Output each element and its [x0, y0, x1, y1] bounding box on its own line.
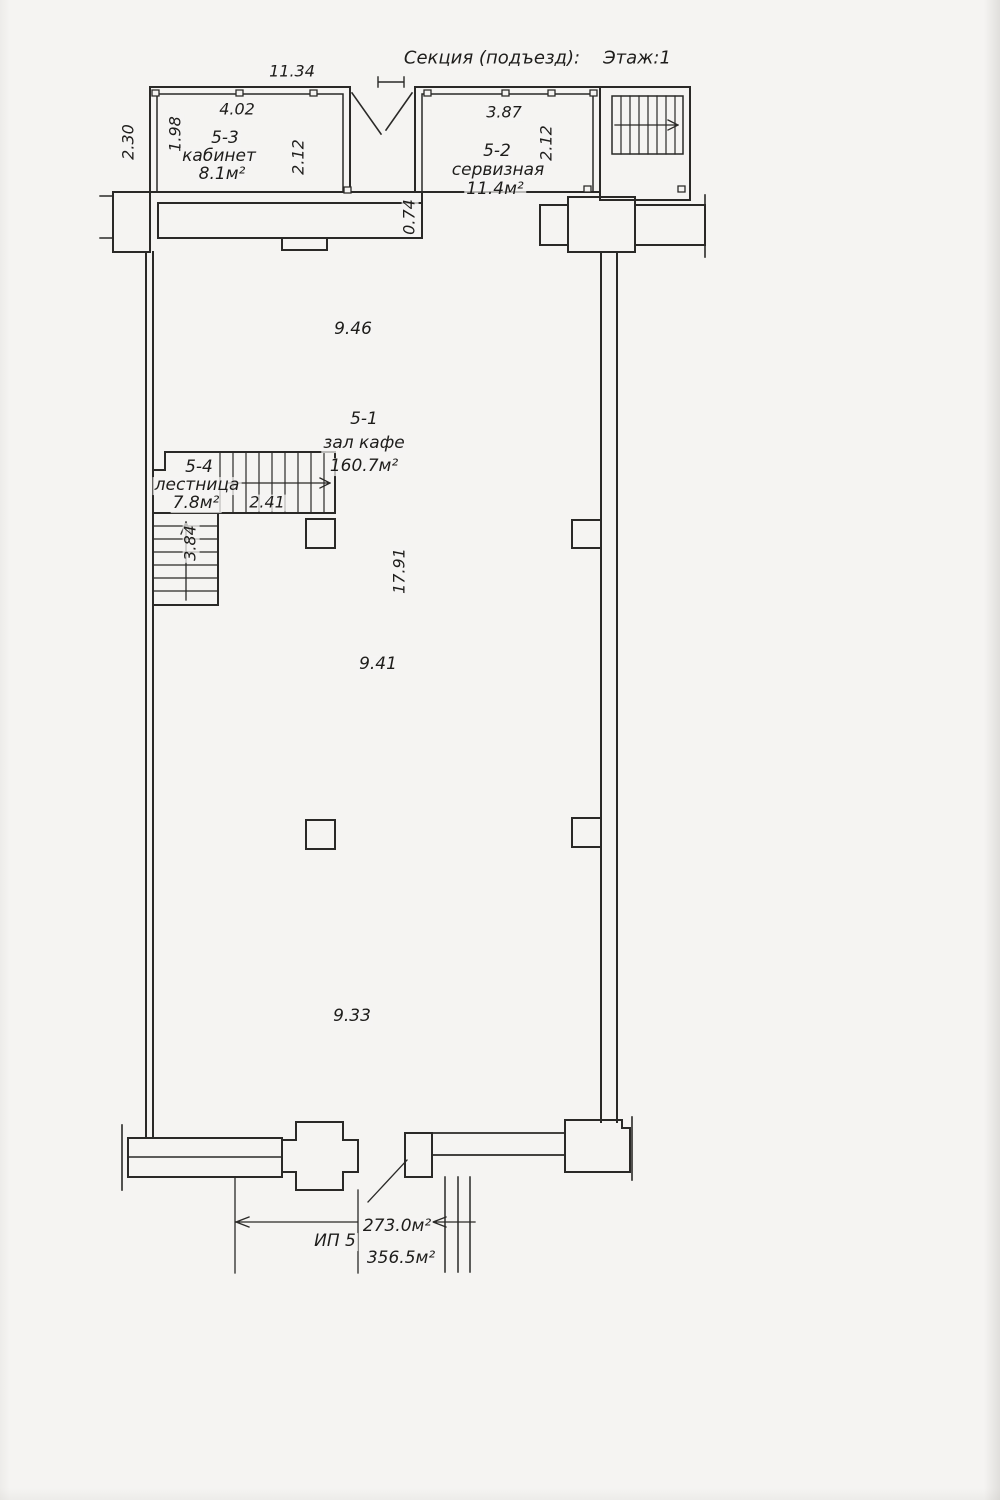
dim-top-total: 11.34: [267, 64, 317, 81]
entrance-door-icon: [352, 77, 412, 134]
dim-cab-width: 4.02: [217, 102, 257, 119]
dim-vestibule: 2.12: [291, 137, 308, 177]
floor-title: Этаж:1: [601, 50, 673, 69]
dim-serv-width: 3.87: [484, 105, 524, 122]
owner-label: ИП 5: [312, 1233, 358, 1251]
dim-stair-flight: 3.84: [183, 523, 200, 563]
dim-serv-depth: 2.12: [539, 123, 556, 163]
hall-left-wall: [146, 252, 153, 1138]
dim-hall-bottom: 9.33: [331, 1008, 373, 1026]
room-5-2-id: 5-2: [481, 143, 513, 161]
dim-left-outer: 2.30: [121, 122, 138, 162]
staircase-top-icon: [600, 87, 690, 200]
mid-wall-left: [100, 187, 422, 252]
agency-logo: Realt Сильван-Инвест Агентство Недвижимо…: [0, 1280, 1000, 1500]
floor-plan-page: Секция (подъезд): Этаж:1 11.34 4.02 1.98…: [0, 0, 1000, 1500]
room-5-2-name: сервизная: [450, 162, 546, 180]
room-5-1-area: 160.7м²: [328, 458, 400, 476]
hall-columns: [306, 519, 601, 849]
dim-stair-run: 2.41: [247, 495, 287, 512]
mid-wall-right: [540, 186, 705, 257]
room-5-1-id: 5-1: [348, 411, 380, 429]
area-total: 356.5м²: [365, 1250, 437, 1268]
dim-hall-length: 17.91: [392, 546, 409, 596]
dim-hall-mid: 9.41: [357, 656, 399, 674]
floor-plan-drawing: [0, 0, 1000, 1500]
room-5-4-area: 7.8м²: [171, 495, 222, 513]
bottom-wall-left: [122, 1122, 358, 1190]
room-5-3-area: 8.1м²: [197, 166, 248, 184]
section-title: Секция (подъезд):: [402, 50, 582, 69]
hall-right-wall: [601, 252, 617, 1122]
room-5-1-name: зал кафе: [321, 435, 406, 453]
room-5-2-area: 11.4м²: [464, 181, 526, 199]
area-usable: 273.0м²: [361, 1218, 433, 1236]
bottom-wall-right: [405, 1117, 632, 1180]
exterior-steps: [445, 1177, 470, 1272]
dim-hall-top: 9.46: [332, 321, 374, 339]
dim-wall-offset: 0.74: [402, 197, 419, 237]
